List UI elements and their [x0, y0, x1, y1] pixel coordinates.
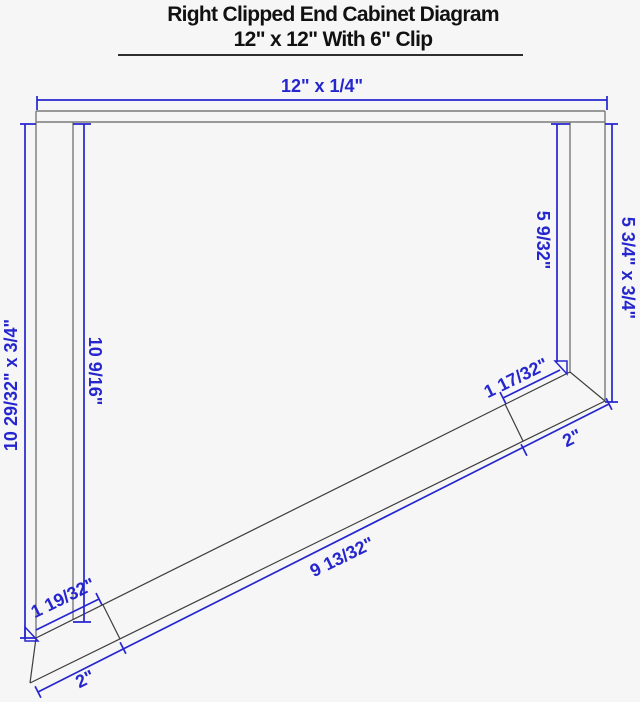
top-dimension-line: [37, 96, 607, 110]
clip-bottom-dimension-label: 2": [559, 425, 584, 451]
diagonal-top-edge: [36, 372, 570, 638]
right-outer-dimension-line: [605, 124, 618, 402]
cabinet-diagram: Right Clipped End Cabinet Diagram 12" x …: [0, 0, 640, 702]
diagonal-bottom-edge: [30, 401, 605, 683]
diagonal-front-dimension-label: 9 13/32": [307, 533, 377, 581]
top-dimension-label: 12" x 1/4": [281, 76, 363, 96]
diagonal-left-separator: [103, 605, 120, 639]
clip-top-dimension-label: 1 17/32": [481, 354, 551, 402]
left-outer-dimension-line: [20, 124, 36, 638]
left-end-top-dimension-label: 1 19/32": [28, 574, 98, 622]
left-outer-dimension-label: 10 29/32" x 3/4": [1, 319, 21, 451]
bottom-diagonal-dimension-line: [35, 398, 612, 698]
left-end-bottom-dimension-label: 2": [72, 666, 97, 692]
diagram-title-line1: Right Clipped End Cabinet Diagram: [167, 3, 499, 26]
diagonal-right-end-cut: [570, 372, 605, 401]
diagram-title-line2: 12" x 12" With 6" Clip: [234, 28, 433, 51]
top-panel-outline: [36, 111, 605, 122]
right-outer-dimension-label: 5 3/4" x 3/4": [618, 217, 638, 319]
left-inner-dimension-label: 10 9/16": [85, 337, 105, 406]
diagonal-right-separator: [505, 404, 523, 441]
diagonal-left-end-cut: [30, 638, 36, 683]
cabinet-diagram-svg: Right Clipped End Cabinet Diagram 12" x …: [0, 0, 640, 702]
right-inner-dimension-label: 5 9/32": [533, 211, 553, 270]
